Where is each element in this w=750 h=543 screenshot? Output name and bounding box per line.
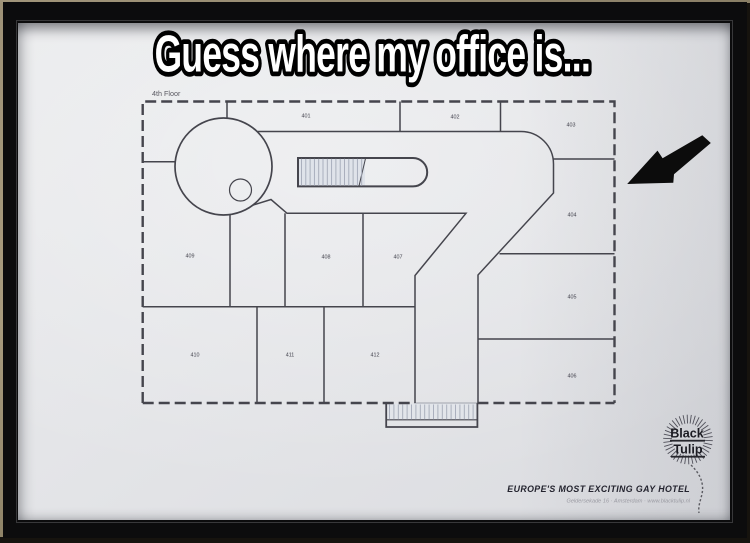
svg-text:412: 412 xyxy=(371,353,380,359)
svg-text:401: 401 xyxy=(302,114,311,120)
svg-text:406: 406 xyxy=(568,374,577,380)
svg-text:404: 404 xyxy=(568,213,577,219)
svg-text:402: 402 xyxy=(451,115,460,121)
svg-text:405: 405 xyxy=(568,295,577,301)
svg-text:407: 407 xyxy=(394,255,403,261)
svg-text:410: 410 xyxy=(191,353,200,359)
svg-text:EUROPE'S MOST EXCITING GAY HOT: EUROPE'S MOST EXCITING GAY HOTEL xyxy=(507,484,690,494)
svg-text:411: 411 xyxy=(286,353,295,359)
svg-text:403: 403 xyxy=(567,123,576,129)
svg-text:Guess where my office is...: Guess where my office is... xyxy=(155,26,590,83)
svg-text:408: 408 xyxy=(322,255,331,261)
svg-text:Black: Black xyxy=(670,427,705,441)
svg-text:4th Floor: 4th Floor xyxy=(152,89,181,98)
svg-text:Geldersekade 16 · Amsterdam: Geldersekade 16 · Amsterdam · www.blackt… xyxy=(566,499,690,505)
svg-text:409: 409 xyxy=(186,254,195,260)
svg-text:Tulip: Tulip xyxy=(673,443,702,457)
